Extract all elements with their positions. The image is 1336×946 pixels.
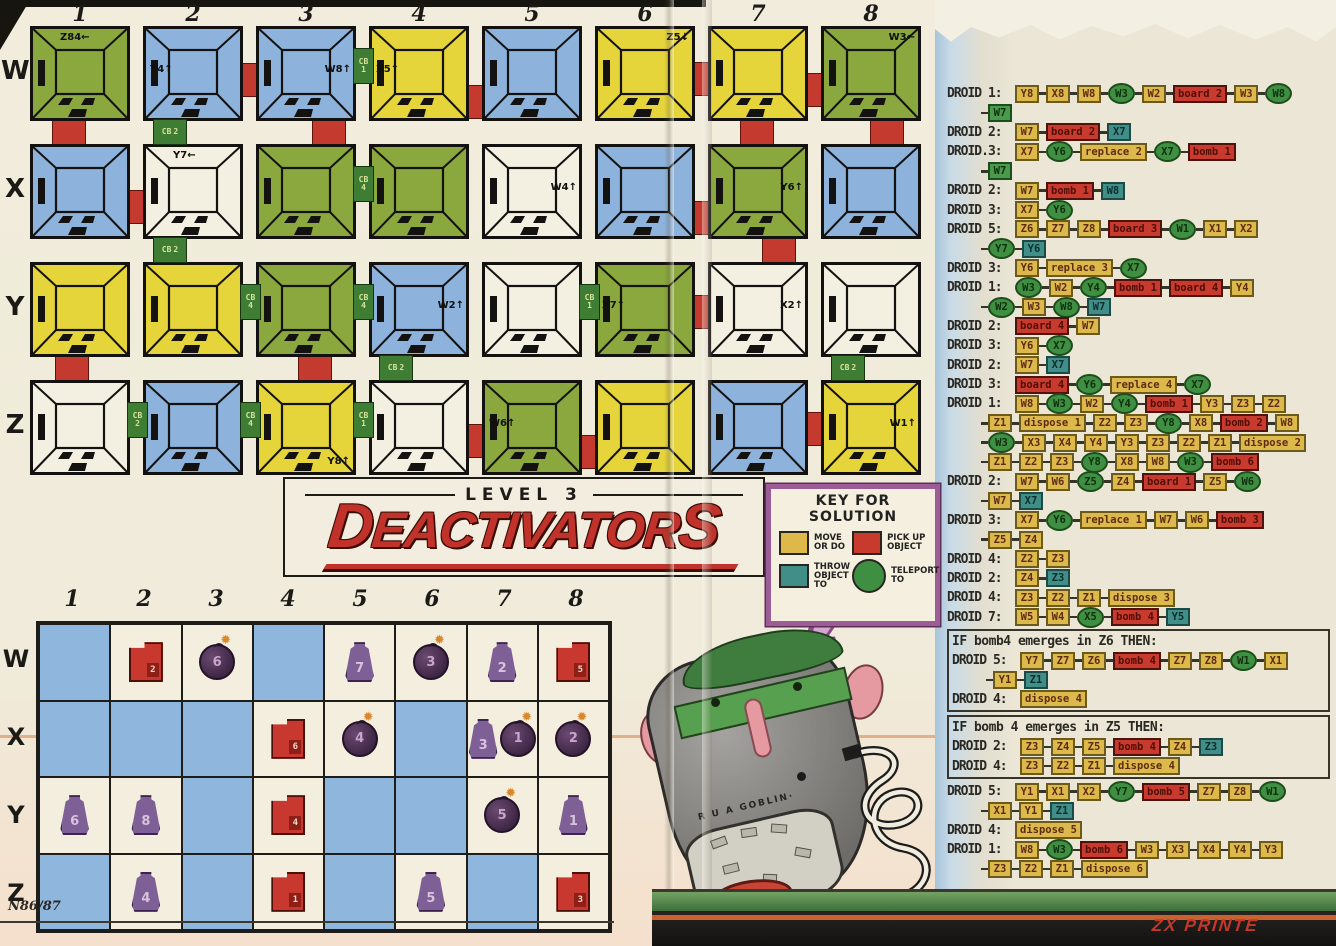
move-token: W7	[1154, 511, 1178, 529]
token-connector	[1161, 659, 1168, 662]
solution-line: Z1Z2Z3Y8X8W8W3bomb 6	[947, 452, 1336, 471]
solution-line: DROID 1:W3W2Y4bomb 1board 4Y4	[947, 278, 1336, 297]
droid-label: DROID 5:	[947, 222, 1015, 237]
game-title: DEACTIVATORS	[282, 501, 766, 556]
room-teleport-label: W3←	[889, 32, 915, 43]
room-X2: Y7←	[143, 144, 243, 239]
move-token: Z5	[1082, 738, 1106, 756]
solution-line: DROID 4:Z2Z3	[947, 549, 1336, 568]
move-token: Z1	[988, 453, 1012, 471]
room-art	[821, 144, 921, 239]
folder-number: 4	[289, 816, 301, 830]
move-token: Z3	[1231, 395, 1255, 413]
bomb-number: 2	[569, 731, 578, 746]
room-Z1	[30, 380, 130, 475]
cb-connector: CB2	[379, 355, 413, 381]
item-grid-column-header: 4	[252, 586, 324, 612]
room-art	[143, 262, 243, 357]
zx-printout-panel: DROID 1:Y8X8W8W3W2board 2W3W8W7DROID 2:W…	[935, 0, 1336, 946]
room-X4	[369, 144, 469, 239]
move-token: Z2	[1046, 589, 1070, 607]
token-connector	[1073, 403, 1080, 406]
cb-number: 2	[173, 128, 178, 136]
move-token: replace 2	[1080, 143, 1147, 161]
teleport-token: W3	[1177, 452, 1204, 473]
droid-label: DROID 2:	[947, 571, 1015, 586]
room-Y4: W2↑	[369, 262, 469, 357]
teleport-token: W3	[1046, 393, 1073, 414]
item-cell: ✹4	[324, 701, 395, 778]
key-entry: TELEPORT TO	[852, 559, 939, 593]
move-token: X1	[1046, 783, 1070, 801]
move-token: X2	[1077, 783, 1101, 801]
solution-line: DROID 3:board 4Y6replace 4X7	[947, 375, 1336, 394]
cb-number: 4	[361, 302, 366, 310]
solution-line: DROID 4:Z3Z2Z1dispose 4	[952, 757, 1325, 776]
token-connector	[1170, 461, 1177, 464]
token-connector	[1070, 790, 1077, 793]
pickup-token: board 4	[1015, 317, 1069, 335]
solution-line: DROID 2:W7X7	[947, 355, 1336, 374]
teleport-token: W8	[1053, 297, 1080, 318]
move-token: W2	[1142, 85, 1166, 103]
move-token: Z8	[1199, 652, 1223, 670]
token-connector	[1252, 849, 1259, 852]
teleport-token: Y6	[1076, 374, 1103, 395]
move-token: W7	[988, 104, 1012, 122]
token-connector	[1108, 461, 1115, 464]
room-Z2	[143, 380, 243, 475]
footer-note: N86/87	[8, 899, 61, 914]
bomb-number: 5	[498, 808, 507, 823]
move-token: dispose 1	[1019, 414, 1086, 432]
move-token: Y1	[1019, 802, 1043, 820]
move-token: W7	[1015, 182, 1039, 200]
map-column-header: 3	[256, 1, 356, 27]
token-connector	[1147, 151, 1154, 154]
teleport-token: W1	[1230, 650, 1257, 671]
token-connector	[1042, 286, 1049, 289]
cb-label: CB	[162, 246, 172, 254]
move-token: Z3	[1020, 757, 1044, 775]
room-art	[30, 144, 130, 239]
token-connector	[1046, 441, 1053, 444]
token-connector	[1043, 868, 1050, 871]
cb-number: 4	[248, 302, 253, 310]
token-connector	[1073, 286, 1080, 289]
solution-line: DROID 5:Z6Z7Z8board 3W1X1X2	[947, 220, 1336, 239]
teleport-token: X7	[1046, 335, 1073, 356]
token-connector	[1182, 422, 1189, 425]
folder-icon: 3	[556, 872, 590, 912]
folder-icon: 4	[271, 795, 305, 835]
solution-line: DROID 5:Y7Z7Z6bomb 4Z7Z8W1X1	[952, 651, 1325, 670]
room-art	[256, 262, 356, 357]
teleport-token: Y7	[1108, 781, 1135, 802]
blocked-cell	[395, 701, 466, 778]
token-connector	[1015, 306, 1022, 309]
cb-number: 4	[361, 184, 366, 192]
cb-number: 2	[399, 364, 404, 372]
bomb-fuse-icon: ✹	[434, 636, 445, 646]
blocked-cell	[253, 624, 324, 701]
cb-number: 2	[173, 246, 178, 254]
room-X3	[256, 144, 356, 239]
item-grid-column-header: 5	[324, 586, 396, 612]
room-Y8	[821, 262, 921, 357]
token-connector	[1192, 659, 1199, 662]
token-connector	[1012, 810, 1019, 813]
token-connector	[1101, 790, 1108, 793]
move-token: Z2	[1051, 757, 1075, 775]
token-connector	[1162, 228, 1169, 231]
blocked-cell	[39, 854, 110, 931]
item-cell: ✹6	[182, 624, 253, 701]
flask-number: 1	[569, 814, 578, 829]
throw-token: W7	[1087, 298, 1111, 316]
room-Y5	[482, 262, 582, 357]
teleport-token: Y6	[1046, 510, 1073, 531]
move-token: Y4	[1230, 279, 1254, 297]
token-connector	[1073, 519, 1080, 522]
printer-brand-label: ZX PRINTE	[1151, 916, 1260, 936]
pickup-token: bomb 2	[1220, 414, 1268, 432]
cb-connector: CB2	[127, 402, 148, 438]
bomb-fuse-icon: ✹	[521, 713, 532, 723]
teleport-token: X7	[1120, 258, 1147, 279]
throw-token: X7	[1046, 356, 1070, 374]
item-grid-column-header: 2	[108, 586, 180, 612]
move-token: W7	[988, 492, 1012, 510]
droid-label: DROID 5:	[947, 784, 1015, 799]
teleport-token: W3	[1108, 83, 1135, 104]
token-connector	[1192, 746, 1199, 749]
cb-connector: CB1	[353, 48, 374, 84]
token-connector	[1044, 659, 1051, 662]
cb-connector: CB2	[831, 355, 865, 381]
move-token: X7	[1015, 143, 1039, 161]
conditional-section: IF bomb4 emerges in Z6 THEN:DROID 5:Y7Z7…	[947, 629, 1330, 712]
blocked-cell	[467, 854, 538, 931]
solution-line: DROID 3:Y6replace 3X7	[947, 259, 1336, 278]
room-Z3: Y8↑	[256, 380, 356, 475]
move-token: replace 3	[1046, 259, 1113, 277]
move-token: Z2	[1015, 550, 1039, 568]
flask-icon: 8	[131, 795, 161, 835]
item-cell: 5	[538, 624, 609, 701]
token-connector	[1073, 151, 1080, 154]
solution-line: DROID 1:W8W3bomb 6W3X3X4Y4Y3	[947, 840, 1336, 859]
token-connector	[1159, 616, 1166, 619]
conditional-section: IF bomb 4 emerges in Z5 THEN:DROID 2:Z3Z…	[947, 715, 1330, 779]
token-connector	[1039, 616, 1046, 619]
droid-label: DROID 4:	[947, 590, 1015, 605]
token-connector	[1258, 92, 1265, 95]
token-connector	[1223, 286, 1230, 289]
move-token: Y6	[1015, 259, 1039, 277]
move-token: Y1	[993, 671, 1017, 689]
move-token: Z4	[1111, 473, 1135, 491]
token-connector	[1039, 403, 1046, 406]
folder-number: 3	[574, 893, 586, 907]
token-connector	[1190, 790, 1197, 793]
token-connector	[1193, 403, 1200, 406]
pickup-token: bomb 1	[1145, 395, 1193, 413]
token-connector	[1043, 461, 1050, 464]
token-connector	[981, 112, 988, 115]
key-legend: MOVE OR DOPICK UP OBJECTTHROW OBJECT TOT…	[771, 525, 935, 593]
door-connector	[740, 118, 774, 147]
solution-line: DROID 3:X7Y6	[947, 200, 1336, 219]
token-connector	[1086, 422, 1093, 425]
room-Z5: W6↑	[482, 380, 582, 475]
token-connector	[1104, 480, 1111, 483]
token-connector	[1252, 790, 1259, 793]
bomb-fuse-icon: ✹	[220, 636, 231, 646]
cb-connector: CB4	[240, 284, 261, 320]
token-connector	[1039, 597, 1046, 600]
solution-line: DROID 2:board 4W7	[947, 317, 1336, 336]
item-cell: ✹3	[395, 624, 466, 701]
room-teleport-label: X2↑	[780, 300, 803, 311]
droid-label: DROID 1:	[947, 396, 1015, 411]
token-connector	[1039, 790, 1046, 793]
teleport-token: Y6	[1046, 141, 1073, 162]
token-connector	[1039, 151, 1046, 154]
move-token: W8	[1015, 395, 1039, 413]
move-token: W7	[1015, 356, 1039, 374]
token-connector	[1044, 765, 1051, 768]
token-connector	[1103, 383, 1110, 386]
blocked-cell	[39, 701, 110, 778]
move-token: dispose 6	[1081, 860, 1148, 878]
solution-key-box: KEY FOR SOLUTION MOVE OR DOPICK UP OBJEC…	[766, 484, 940, 626]
token-connector	[1255, 403, 1262, 406]
token-connector	[1069, 383, 1076, 386]
solution-line: DROID 2:W7W6Z5Z4board 1Z5W6	[947, 472, 1336, 491]
token-connector	[981, 538, 988, 541]
map-column-header: 2	[143, 1, 243, 27]
token-connector	[1101, 92, 1108, 95]
move-token: Z1	[1077, 589, 1101, 607]
map-column-header: 6	[595, 1, 695, 27]
droid-label: DROID 2:	[947, 358, 1015, 373]
token-connector	[1039, 849, 1046, 852]
solution-line: W7	[947, 103, 1336, 122]
room-art	[30, 380, 130, 475]
token-connector	[1224, 403, 1231, 406]
room-art	[708, 380, 808, 475]
footer-rule	[0, 921, 614, 923]
flask-icon: 3	[468, 719, 498, 759]
cb-connector: CB4	[353, 166, 374, 202]
move-token: W7	[1015, 473, 1039, 491]
cb-connector: CB2	[153, 237, 187, 263]
move-token: Z8	[1228, 783, 1252, 801]
token-connector	[1039, 519, 1046, 522]
throw-token: Y5	[1166, 608, 1190, 626]
room-art	[482, 262, 582, 357]
move-token: dispose 4	[1020, 690, 1087, 708]
token-connector	[1108, 441, 1115, 444]
move-token: Y1	[1015, 783, 1039, 801]
folder-number: 5	[574, 663, 586, 677]
token-connector	[1135, 92, 1142, 95]
move-token: W8	[1146, 453, 1170, 471]
pickup-token: board 2	[1046, 123, 1100, 141]
door-connector	[52, 118, 86, 147]
room-X7: Y6↑	[708, 144, 808, 239]
bomb-icon: ✹5	[484, 797, 520, 833]
solution-line: Z1dispose 1Z2Z3Y8X8bomb 2W8	[947, 414, 1336, 433]
throw-token: Z3	[1046, 569, 1070, 587]
move-token: replace 1	[1080, 511, 1147, 529]
item-cell: ✹2	[538, 701, 609, 778]
magazine-page: 12345678WXYZZ84←Y4↑W8↑X5↑Z5↓W3←Y7←W4↑Y6↑…	[0, 0, 1336, 946]
token-connector	[1178, 519, 1185, 522]
move-token: Z1	[988, 414, 1012, 432]
droid-label: DROID 3:	[947, 377, 1015, 392]
move-token: W2	[1049, 279, 1073, 297]
token-connector	[1104, 403, 1111, 406]
token-connector	[1135, 480, 1142, 483]
token-connector	[1080, 306, 1087, 309]
droid-label: DROID 4:	[947, 823, 1015, 838]
blocked-cell	[182, 854, 253, 931]
throw-token: X7	[1019, 492, 1043, 510]
cb-number: 4	[248, 420, 253, 428]
move-token: W2	[1080, 395, 1104, 413]
item-grid-column-header: 8	[540, 586, 612, 612]
map-column-header: 8	[821, 1, 921, 27]
flask-icon: 1	[558, 795, 588, 835]
flask-icon: 2	[487, 642, 517, 682]
droid-label: DROID 5:	[952, 653, 1020, 668]
throw-token: Z1	[1024, 671, 1048, 689]
cb-connector: CB4	[353, 284, 374, 320]
move-token: Y7	[1020, 652, 1044, 670]
move-token: X8	[1189, 414, 1213, 432]
token-connector	[1100, 131, 1107, 134]
pickup-token: bomb 1	[1188, 143, 1236, 161]
move-token: Z2	[1019, 453, 1043, 471]
teleport-token: Y4	[1111, 393, 1138, 414]
move-token: Z7	[1168, 652, 1192, 670]
move-token: Z1	[1082, 757, 1106, 775]
token-connector	[1039, 209, 1046, 212]
item-grid-column-header: 3	[180, 586, 252, 612]
move-token: W4	[1046, 608, 1070, 626]
droid-label: DROID 1:	[947, 842, 1015, 857]
key-title: KEY FOR SOLUTION	[771, 493, 935, 525]
item-grid-column-header: 6	[396, 586, 468, 612]
room-W8: W3←	[821, 26, 921, 121]
title-first-letter: D	[325, 492, 376, 561]
token-connector	[1209, 519, 1216, 522]
token-connector	[981, 461, 988, 464]
token-connector	[1012, 461, 1019, 464]
key-entry-label: PICK UP OBJECT	[887, 534, 925, 552]
item-grid-row-header: Y	[2, 801, 30, 829]
key-swatch-icon	[779, 531, 809, 555]
folder-icon: 1	[271, 872, 305, 912]
map-row-header: X	[1, 174, 29, 204]
move-token: W3	[1135, 841, 1159, 859]
room-Z6	[595, 380, 695, 475]
teleport-token: W8	[1265, 83, 1292, 104]
move-token: X1	[1264, 652, 1288, 670]
item-grid-column-header: 7	[468, 586, 540, 612]
token-connector	[1159, 849, 1166, 852]
token-connector	[1012, 500, 1019, 503]
room-art	[369, 380, 469, 475]
move-token: Z7	[1051, 652, 1075, 670]
token-connector	[986, 679, 993, 682]
token-connector	[1113, 267, 1120, 270]
token-connector	[1012, 868, 1019, 871]
solution-line: DROID 1:W8W3W2Y4bomb 1Y3Z3Z2	[947, 394, 1336, 413]
token-connector	[1227, 480, 1234, 483]
title-last-letter: S	[676, 492, 724, 561]
map-row-header: Y	[1, 292, 29, 322]
move-token: W3	[1022, 298, 1046, 316]
move-token: Z1	[1050, 860, 1074, 878]
teleport-token: W3	[1046, 839, 1073, 860]
move-token: Z2	[1093, 414, 1117, 432]
teleport-token: W6	[1234, 471, 1261, 492]
move-token: W8	[1015, 841, 1039, 859]
solution-line: DROID 4:dispose 5	[947, 821, 1336, 840]
folder-number: 6	[289, 740, 301, 754]
move-token: W7	[1015, 123, 1039, 141]
item-cell: 5	[395, 854, 466, 931]
solution-line: X1Y1Z1	[947, 801, 1336, 820]
cb-number: 1	[361, 420, 366, 428]
pickup-token: board 4	[1169, 279, 1223, 297]
token-connector	[1101, 228, 1108, 231]
item-cell: 4	[110, 854, 181, 931]
goblin-eye-left	[711, 698, 720, 707]
flask-number: 8	[141, 814, 150, 829]
item-cell: 3	[538, 854, 609, 931]
move-token: Z3	[1124, 414, 1148, 432]
token-connector	[1015, 248, 1022, 251]
flask-number: 5	[426, 891, 435, 906]
room-W3: W8↑	[256, 26, 356, 121]
pickup-token: board 3	[1108, 220, 1162, 238]
token-connector	[1196, 480, 1203, 483]
token-connector	[1227, 92, 1234, 95]
cb-label: CB	[388, 364, 398, 372]
pickup-token: bomb 5	[1142, 783, 1190, 801]
token-connector	[1139, 441, 1146, 444]
droid-label: DROID 3:	[947, 203, 1015, 218]
token-connector	[1074, 868, 1081, 871]
folder-number: 2	[147, 663, 159, 677]
map-column-header: 1	[30, 1, 130, 27]
flask-icon: 7	[345, 642, 375, 682]
solution-line: Z3Z2Z1dispose 6	[947, 859, 1336, 878]
move-token: Y6	[1015, 337, 1039, 355]
token-connector	[1046, 306, 1053, 309]
token-connector	[1039, 92, 1046, 95]
solution-line: DROID 2:W7board 2X7	[947, 123, 1336, 142]
door-connector	[298, 354, 332, 383]
item-cell: 2	[110, 624, 181, 701]
room-teleport-label: W4↑	[551, 182, 577, 193]
room-W6: Z5↓	[595, 26, 695, 121]
folder-icon: 5	[556, 642, 590, 682]
